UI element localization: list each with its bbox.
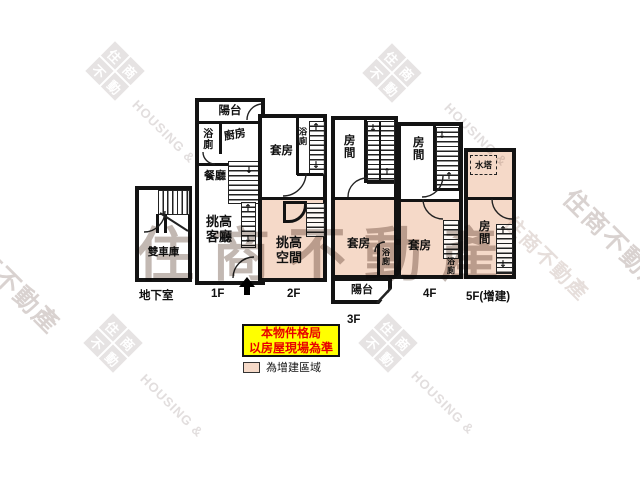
stair-arrow-icon: ↓ (499, 260, 507, 270)
room-label-suite: 套房 (347, 238, 370, 252)
room-label-room: 房間 (341, 134, 355, 159)
logo-char: 商 (389, 329, 417, 357)
interior-wall (262, 197, 323, 200)
room-label-room: 房間 (476, 220, 490, 245)
logo-char: 不 (85, 57, 113, 85)
stair-arrow-icon: ↓ (245, 166, 253, 176)
floor-plan-4f: 房間 ↓ ↑ 套房 浴廁 (397, 122, 463, 279)
stair-arrow-icon: ↓ (312, 161, 320, 171)
stair-arrow-icon: ↑ (499, 226, 507, 236)
balcony-3f: 陽台 (331, 277, 392, 304)
interior-wall (433, 188, 459, 191)
stair-divider (379, 122, 381, 181)
brand-watermark-edge-left: 住商不動產 (0, 220, 69, 341)
stairs-icon (306, 203, 325, 237)
logo-char: 動 (99, 344, 127, 372)
stair-arrow-icon: ↑ (312, 123, 320, 133)
stair-arrow-icon: ↑ (383, 168, 391, 178)
housing-watermark-text: HOUSING & (137, 371, 206, 440)
room-label-bath: 浴廁 (446, 257, 455, 275)
brand-watermark-edge-right: 住商不動產 (556, 180, 640, 301)
logo-char: 住 (99, 313, 127, 341)
floor-plan-5f: 水塔 房間 ↑ ↓ (464, 148, 516, 279)
legend-addition-label: 為增建區域 (266, 359, 321, 375)
floorplan-image: 住商不動 住商不動 住商不動 住商不動 HOUSING & HOUSING & … (0, 0, 640, 480)
floor-plan-2f: 套房 浴廁 ↑ ↓ 挑高空間 (258, 114, 327, 282)
legend-addition-swatch (243, 362, 260, 373)
interior-wall (199, 121, 261, 124)
floor-label-basement: 地下室 (139, 287, 174, 303)
logo-char: 不 (358, 329, 386, 357)
stairs-icon (443, 220, 459, 259)
floor-plan-basement: 雙車庫 (135, 186, 192, 282)
disclaimer-line2: 以房屋現場為準 (249, 341, 333, 356)
logo-char: 商 (393, 59, 421, 87)
logo-char: 商 (114, 329, 142, 357)
brand-logo-watermark-icon: 住商不動 (362, 43, 421, 102)
brand-logo-watermark-icon: 住商不動 (83, 313, 142, 372)
logo-char: 動 (101, 72, 129, 100)
room-label-bath: 浴廁 (381, 248, 390, 266)
interior-wall (433, 126, 436, 190)
interior-wall (364, 180, 394, 183)
floor-label-5f: 5F(增建) (466, 288, 510, 304)
room-label-balcony: 陽台 (345, 284, 379, 297)
room-label-tank: 水塔 (475, 160, 492, 170)
housing-watermark-text: HOUSING & (408, 368, 477, 437)
interior-wall (377, 244, 380, 275)
room-label-suite: 套房 (270, 145, 293, 159)
room-label-dining: 餐廳 (200, 170, 230, 183)
room-label-suite: 套房 (408, 240, 431, 254)
interior-wall (364, 120, 367, 182)
room-label-living: 挑高客廳 (204, 214, 234, 245)
logo-char: 動 (374, 344, 402, 372)
interior-wall (297, 173, 323, 176)
stair-arrow-icon: ↓ (438, 131, 446, 141)
brand-logo-watermark-icon: 住商不動 (358, 313, 417, 372)
room-label-balcony: 陽台 (208, 105, 252, 119)
room-label-void: 挑高空間 (274, 235, 304, 266)
floor-plan-1f: 陽台 浴廁 廚房 餐廳 ↓ ↑ ↓ 挑高客廳 (195, 98, 265, 285)
logo-char: 商 (116, 57, 144, 85)
interior-wall (401, 199, 459, 202)
room-label-bath: 浴廁 (298, 127, 308, 146)
interior-wall (468, 197, 512, 200)
disclaimer-line1: 本物件格局 (261, 326, 321, 341)
interior-wall (296, 118, 299, 175)
floor-label-4f: 4F (423, 288, 436, 300)
stair-arrow-icon: ↓ (244, 235, 252, 245)
logo-char: 不 (83, 329, 111, 357)
interior-wall (219, 121, 222, 154)
brand-logo-watermark-icon: 住商不動 (85, 41, 144, 100)
stair-arrow-icon: ↑ (244, 204, 252, 214)
room-label-kitchen: 廚房 (223, 127, 247, 144)
water-tank-box: 水塔 (470, 155, 497, 175)
logo-char: 住 (378, 43, 406, 71)
floor-plan-3f: 房間 ↓ ↑ 套房 浴廁 (331, 116, 398, 279)
stairs-icon (158, 190, 190, 215)
stair-arrow-icon: ↓ (369, 124, 377, 134)
interior-wall (164, 214, 167, 233)
logo-char: 不 (362, 59, 390, 87)
floor-label-3f: 3F (347, 314, 360, 326)
room-label-garage: 雙車庫 (140, 246, 187, 258)
entrance-arrow-icon (239, 277, 255, 296)
housing-watermark-text: HOUSING & (129, 97, 198, 166)
interior-wall (335, 197, 394, 200)
disclaimer-note: 本物件格局 以房屋現場為準 (242, 324, 340, 357)
stair-arrow-icon: ↑ (445, 172, 453, 182)
room-label-bath: 浴廁 (200, 128, 212, 150)
room-label-room: 房間 (410, 136, 424, 161)
logo-char: 住 (101, 41, 129, 69)
logo-char: 住 (374, 313, 402, 341)
interior-wall (199, 163, 229, 166)
interior-wall (156, 214, 159, 233)
logo-char: 動 (378, 74, 406, 102)
floor-label-2f: 2F (287, 288, 300, 300)
floor-label-1f: 1F (211, 288, 224, 300)
